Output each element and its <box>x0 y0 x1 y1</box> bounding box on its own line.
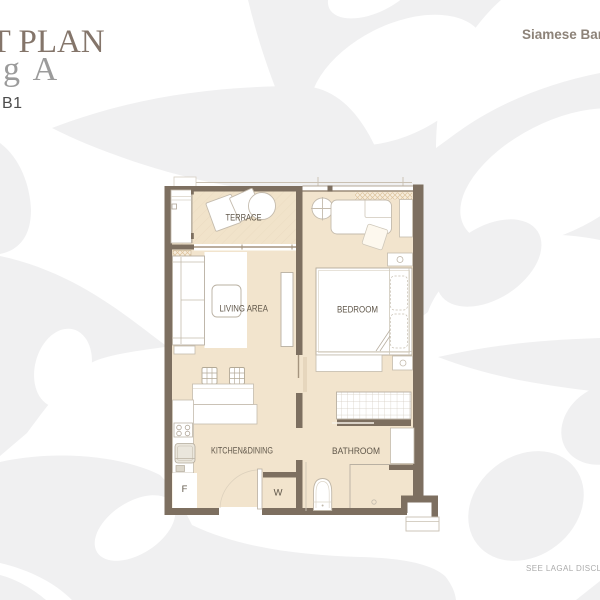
svg-text:BEDROOM: BEDROOM <box>337 304 378 315</box>
svg-text:TERRACE: TERRACE <box>226 212 262 223</box>
svg-text:BATHROOM: BATHROOM <box>332 445 380 456</box>
svg-text:KITCHEN&DINING: KITCHEN&DINING <box>211 445 273 456</box>
svg-text:W: W <box>274 487 283 498</box>
svg-text:F: F <box>182 483 188 494</box>
svg-text:LIVING AREA: LIVING AREA <box>219 303 268 314</box>
